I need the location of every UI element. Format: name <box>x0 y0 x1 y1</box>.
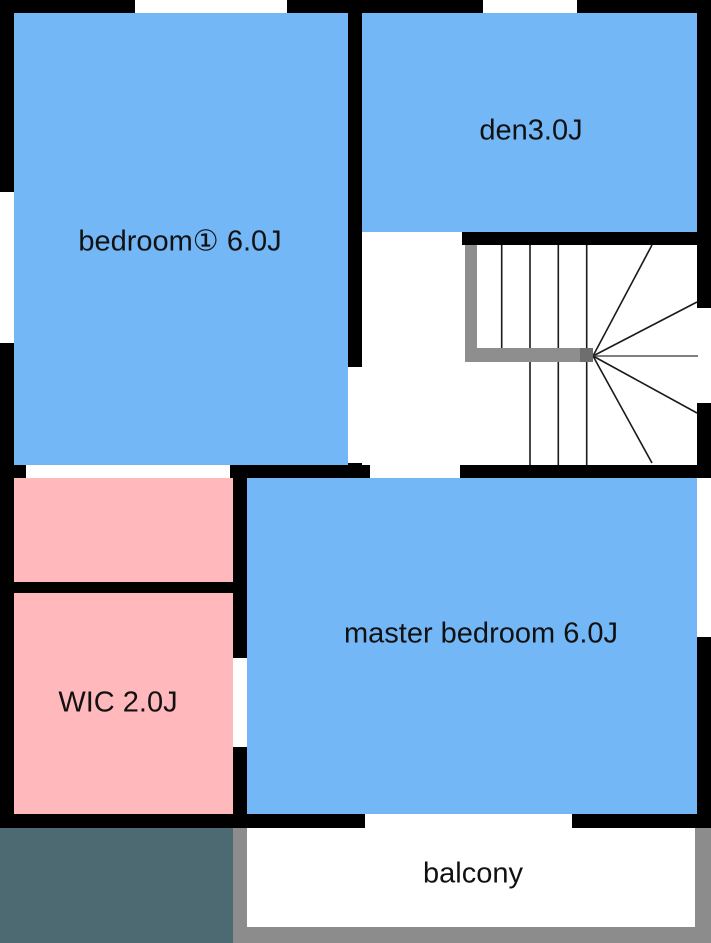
door-closet <box>26 465 230 478</box>
label-wic: WIC 2.0J <box>58 687 177 720</box>
roof-section <box>0 828 233 943</box>
wall-closet-wic-divider <box>14 582 233 593</box>
window-bedroom1-left <box>0 192 14 343</box>
stair-handrail-horizontal <box>465 348 593 362</box>
window-bedroom1-top <box>135 0 287 13</box>
staircase <box>462 243 711 465</box>
door-master-bedroom <box>370 465 460 478</box>
wall-bottom <box>0 814 711 828</box>
room-closet <box>14 478 233 582</box>
stair-winder-line <box>593 302 697 356</box>
door-bedroom1 <box>348 367 362 463</box>
label-master-bedroom: master bedroom 6.0J <box>344 618 618 651</box>
stair-handrail-vertical <box>465 245 477 362</box>
floor-plan-canvas: bedroom① 6.0J den3.0J master bedroom 6.0… <box>0 0 711 943</box>
wall-left <box>0 13 14 816</box>
stair-winder-line <box>593 245 652 356</box>
wall-wic-master <box>233 465 247 814</box>
door-wic <box>233 658 247 747</box>
door-balcony-slider <box>365 814 572 828</box>
wall-top <box>0 0 711 13</box>
label-bedroom-1: bedroom① 6.0J <box>78 224 281 259</box>
label-den: den3.0J <box>479 115 582 148</box>
stair-newel-post <box>580 348 593 362</box>
window-master-right <box>697 478 711 637</box>
label-balcony: balcony <box>423 858 523 891</box>
window-den-top <box>483 0 577 13</box>
